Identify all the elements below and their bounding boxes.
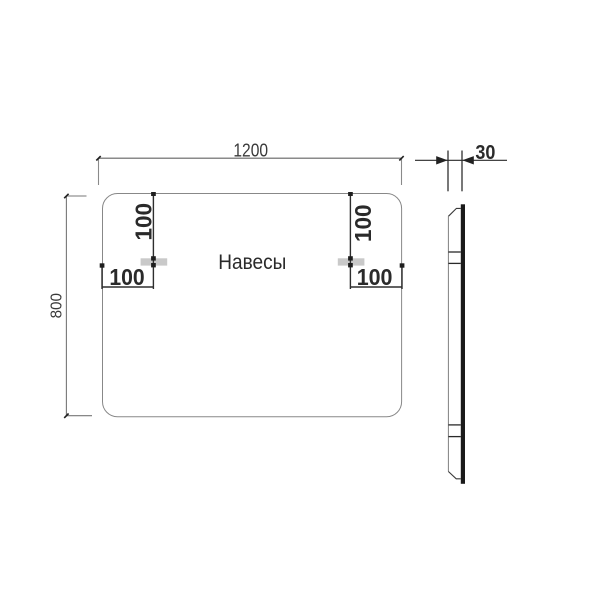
svg-text:100: 100	[357, 264, 393, 290]
svg-text:800: 800	[48, 293, 65, 319]
svg-text:100: 100	[131, 203, 157, 241]
svg-text:Навесы: Навесы	[218, 251, 286, 274]
svg-text:100: 100	[350, 205, 376, 243]
svg-text:100: 100	[109, 264, 144, 290]
svg-text:30: 30	[475, 142, 495, 164]
svg-text:1200: 1200	[233, 141, 268, 161]
